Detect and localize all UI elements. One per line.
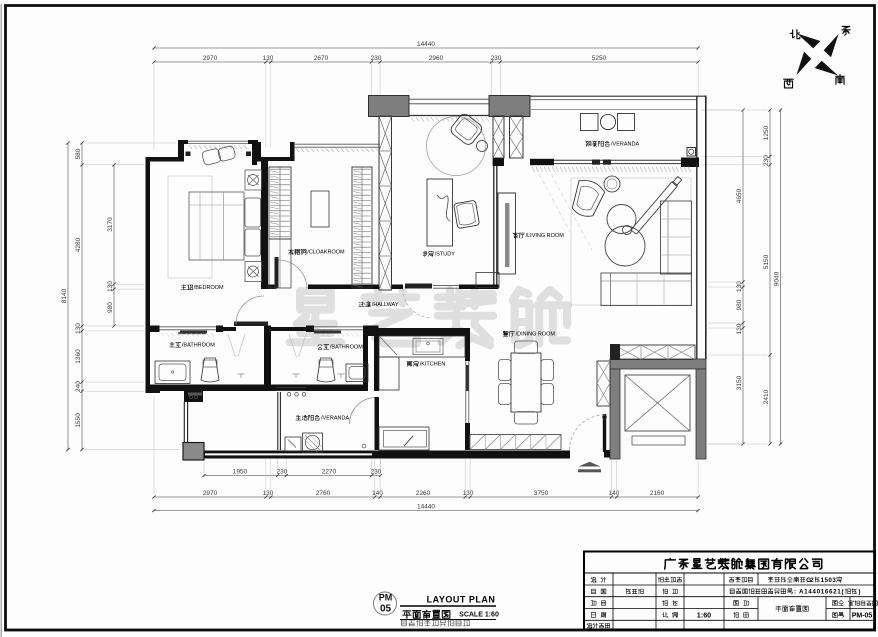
svg-text:14440: 14440: [417, 503, 435, 510]
svg-text:1950: 1950: [233, 468, 248, 475]
svg-text:/BATHROOM: /BATHROOM: [330, 345, 363, 351]
svg-text:980: 980: [107, 302, 114, 313]
svg-text:140: 140: [609, 490, 620, 497]
svg-text:/DINING ROOM: /DINING ROOM: [516, 332, 556, 338]
svg-text:4280: 4280: [75, 237, 82, 252]
svg-text:130: 130: [263, 490, 274, 497]
svg-text:2760: 2760: [316, 490, 331, 497]
svg-text:): ): [858, 589, 860, 596]
svg-text:/VERANDA: /VERANDA: [321, 416, 349, 422]
svg-text:580: 580: [75, 148, 82, 159]
svg-text:/STUDY: /STUDY: [435, 252, 456, 258]
svg-text:/VERANDA: /VERANDA: [611, 142, 639, 148]
svg-text:PM-05: PM-05: [852, 613, 873, 620]
svg-text:/BEDROOM: /BEDROOM: [194, 285, 224, 291]
svg-text:/CLOAKROOM: /CLOAKROOM: [307, 250, 345, 256]
svg-text:130: 130: [736, 281, 743, 292]
svg-text:3150: 3150: [736, 375, 743, 390]
svg-text:230: 230: [491, 55, 502, 62]
svg-text:SCALE 1:60: SCALE 1:60: [459, 612, 499, 619]
svg-text:14440: 14440: [417, 41, 435, 48]
svg-text:230: 230: [371, 55, 382, 62]
svg-text:2410: 2410: [763, 389, 770, 404]
svg-text:2960: 2960: [429, 55, 444, 62]
svg-text:LAYOUT PLAN: LAYOUT PLAN: [427, 595, 496, 605]
svg-text:140: 140: [372, 490, 383, 497]
svg-text:1:60: 1:60: [697, 611, 711, 620]
svg-text:8140: 8140: [61, 288, 68, 303]
svg-text:2260: 2260: [416, 490, 431, 497]
svg-text:9040: 9040: [773, 271, 780, 286]
svg-text:2670: 2670: [314, 55, 329, 62]
svg-text:130: 130: [107, 281, 114, 292]
svg-text:980: 980: [736, 299, 743, 310]
svg-text:2270: 2270: [322, 468, 337, 475]
svg-text:2970: 2970: [203, 490, 218, 497]
svg-text:1250: 1250: [763, 125, 770, 140]
svg-text:3170: 3170: [107, 217, 114, 232]
svg-text:5150: 5150: [763, 254, 770, 269]
svg-text:/KITCHEN: /KITCHEN: [420, 362, 446, 368]
svg-text:2970: 2970: [203, 55, 218, 62]
svg-text:: A144016621(: : A144016621(: [794, 589, 844, 596]
svg-text:130: 130: [463, 490, 474, 497]
svg-text:5250: 5250: [592, 55, 607, 62]
svg-text:1503: 1503: [821, 577, 837, 584]
svg-text:3750: 3750: [534, 490, 549, 497]
svg-text:1550: 1550: [75, 413, 82, 428]
svg-text:G2: G2: [806, 577, 814, 584]
svg-text:/BATHROOM: /BATHROOM: [182, 343, 215, 349]
svg-text:/HALLWAY: /HALLWAY: [372, 302, 399, 308]
svg-text:130: 130: [736, 323, 743, 334]
svg-text:2160: 2160: [650, 490, 665, 497]
svg-text:130: 130: [263, 55, 274, 62]
svg-text:/LIVING ROOM: /LIVING ROOM: [526, 233, 565, 239]
svg-text:4650: 4650: [736, 188, 743, 203]
svg-text:240: 240: [75, 381, 82, 392]
svg-text:130: 130: [75, 323, 82, 334]
svg-text:PM: PM: [379, 593, 393, 603]
svg-text:1360: 1360: [75, 349, 82, 364]
svg-text:05: 05: [380, 604, 392, 615]
